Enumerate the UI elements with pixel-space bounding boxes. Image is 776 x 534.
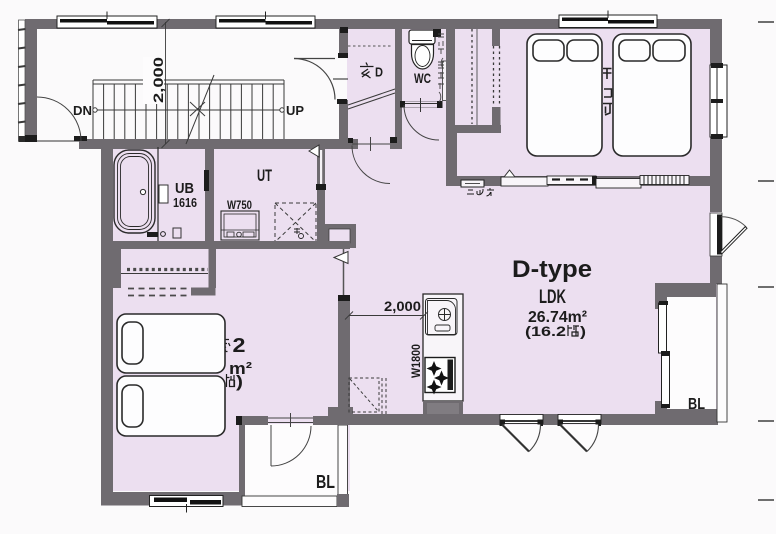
svg-text:(16.2: (16.2 xyxy=(525,323,566,339)
svg-text:D: D xyxy=(375,65,383,80)
svg-text:DN: DN xyxy=(73,103,92,118)
svg-text:1616: 1616 xyxy=(173,196,197,210)
svg-text:2: 2 xyxy=(233,335,246,357)
svg-text:WC: WC xyxy=(414,70,431,86)
svg-text:): ) xyxy=(580,323,586,339)
svg-text:D-type: D-type xyxy=(512,256,592,283)
svg-text:BL: BL xyxy=(688,396,705,413)
svg-text:UB: UB xyxy=(175,180,194,197)
svg-text:W1800: W1800 xyxy=(411,344,423,378)
svg-text:LDK: LDK xyxy=(539,287,566,308)
svg-text:2,000: 2,000 xyxy=(384,298,421,314)
svg-text:W750: W750 xyxy=(227,200,252,212)
svg-text:2,000: 2,000 xyxy=(150,57,166,103)
svg-text:UP: UP xyxy=(286,103,304,118)
svg-text:UT: UT xyxy=(257,166,272,185)
svg-text:): ) xyxy=(236,372,243,391)
svg-text:BL: BL xyxy=(316,472,335,492)
